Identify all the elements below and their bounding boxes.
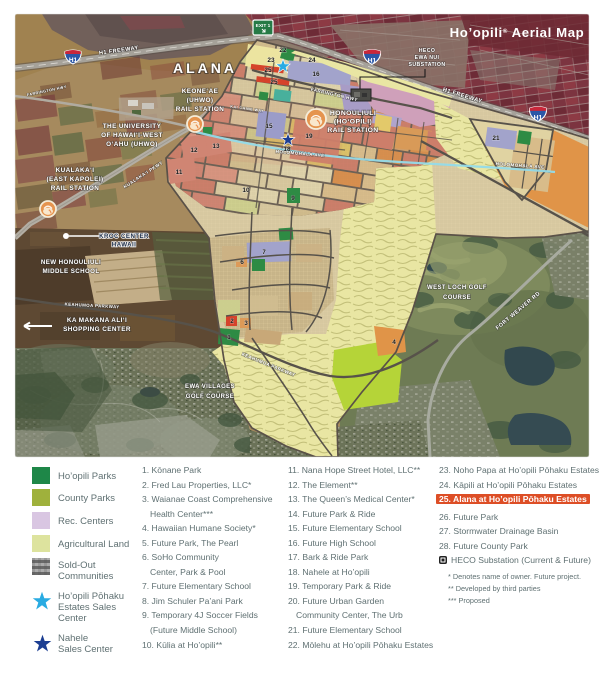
- svg-text:11: 11: [176, 169, 183, 176]
- svg-text:Ho’opili® Aerial Map: Ho’opili® Aerial Map: [450, 25, 585, 40]
- svg-text:18: 18: [283, 146, 291, 153]
- svg-text:HONOULIULI(HO‘OPILI)RAIL STATI: HONOULIULI(HO‘OPILI)RAIL STATION: [327, 110, 378, 134]
- svg-text:13: 13: [212, 143, 220, 150]
- svg-text:EXIT 1: EXIT 1: [256, 23, 271, 29]
- svg-text:THE UNIVERSITYOF HAWAI‘I-WESTO: THE UNIVERSITYOF HAWAI‘I-WESTO‘AHU (UHWO…: [101, 123, 163, 148]
- svg-text:23: 23: [267, 57, 275, 64]
- svg-text:16: 16: [312, 71, 320, 78]
- svg-text:19: 19: [305, 133, 313, 140]
- svg-text:2: 2: [230, 318, 234, 325]
- svg-text:7: 7: [262, 249, 266, 256]
- svg-text:12: 12: [190, 147, 198, 154]
- svg-text:24: 24: [308, 57, 316, 64]
- svg-text:25: 25: [270, 79, 278, 86]
- svg-text:H1: H1: [534, 114, 543, 121]
- svg-text:H1: H1: [69, 57, 78, 64]
- svg-text:6: 6: [240, 259, 244, 266]
- svg-text:ALANA: ALANA: [173, 60, 237, 76]
- svg-text:15: 15: [265, 123, 273, 130]
- svg-text:22: 22: [279, 47, 287, 54]
- svg-text:4: 4: [392, 339, 396, 346]
- svg-text:3: 3: [244, 320, 248, 327]
- svg-text:21: 21: [492, 135, 500, 142]
- svg-text:1: 1: [227, 334, 231, 341]
- svg-text:25: 25: [264, 67, 272, 74]
- svg-text:10: 10: [242, 187, 250, 194]
- svg-text:9: 9: [291, 195, 295, 202]
- svg-text:H1: H1: [368, 57, 377, 64]
